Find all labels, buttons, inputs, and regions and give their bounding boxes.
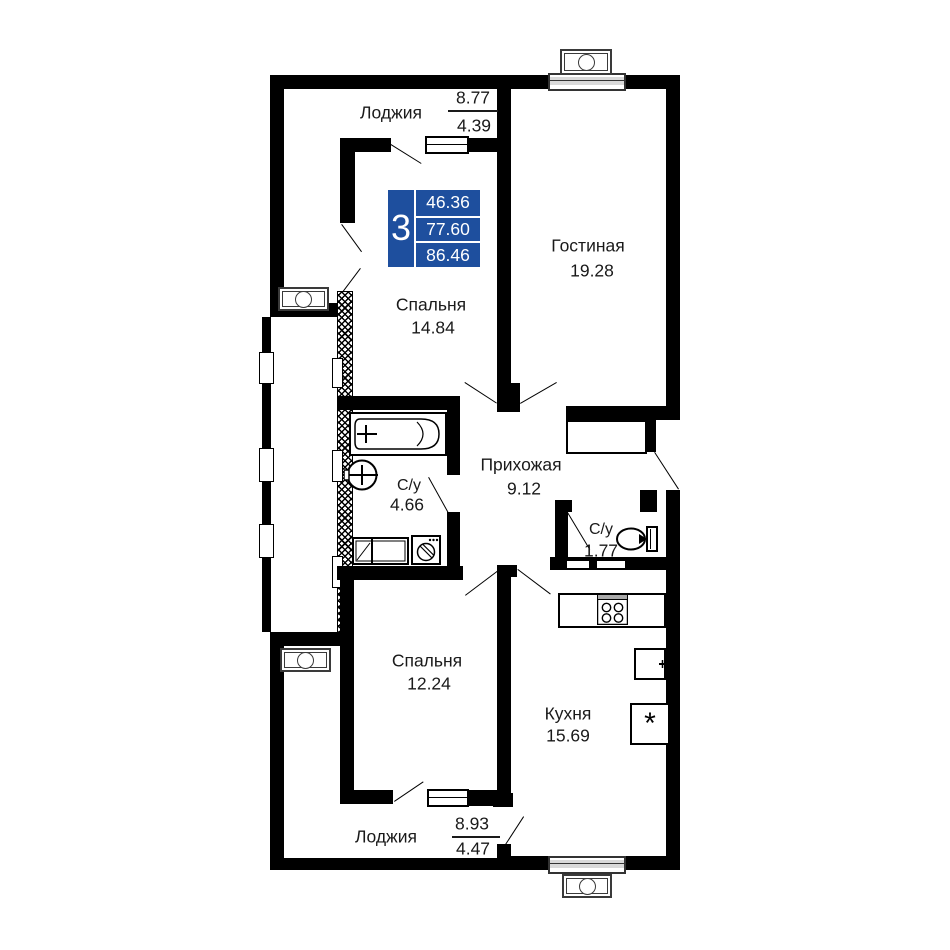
- room-label-hallway: Прихожая: [480, 455, 561, 476]
- apartment-info-badge: 3 46.36 77.60 86.46: [388, 190, 480, 267]
- area-value: 86.46: [416, 241, 480, 267]
- area-value: 46.36: [416, 190, 480, 216]
- wall-segment: [340, 790, 393, 804]
- door-swing: [465, 569, 500, 596]
- area-value: 77.60: [416, 216, 480, 242]
- room-label-kitchen: Кухня: [545, 704, 592, 725]
- room-label-living: Гостиная: [551, 236, 624, 257]
- wall-segment: [270, 75, 284, 317]
- washing-machine-icon: [411, 535, 441, 565]
- vent-slot: [259, 352, 274, 384]
- vent-slot: [259, 448, 274, 482]
- wall-segment: [497, 89, 511, 383]
- wall-segment: [447, 410, 460, 475]
- room-area-living: 19.28: [570, 261, 614, 282]
- wall-segment: [640, 490, 657, 512]
- wall-segment: [493, 793, 513, 807]
- doorway-mark: [464, 382, 496, 404]
- room-area-bathroom: 4.66: [390, 495, 424, 516]
- wall-segment: [337, 566, 463, 580]
- bathtub-icon: [349, 412, 447, 456]
- closet: [566, 420, 647, 454]
- toilet-icon: [614, 525, 659, 553]
- room-area-wc: 1.77: [584, 541, 618, 562]
- window: [548, 856, 626, 874]
- window: [427, 789, 469, 807]
- ac-unit-icon: [560, 49, 612, 75]
- ac-unit-icon: [278, 287, 329, 311]
- sink-icon: [344, 457, 380, 493]
- vent-slot: [259, 524, 274, 558]
- wall-segment: [497, 856, 548, 870]
- entrance-door-swing: [654, 452, 679, 489]
- door-swing: [428, 477, 448, 512]
- window: [425, 136, 469, 154]
- loggia-top-area-full: 8.77: [456, 88, 490, 109]
- room-label-bedroom2: Спальня: [392, 651, 462, 672]
- loggia-top-area-reduced: 4.39: [457, 116, 491, 137]
- window: [548, 73, 626, 91]
- wall-segment: [270, 632, 340, 646]
- vent-slot: [332, 450, 343, 482]
- wall-segment: [497, 565, 511, 807]
- ac-unit-icon: [280, 648, 331, 672]
- refrigerator-symbol: *: [644, 707, 656, 741]
- floor-plan: * 3 46.36 77.60 86.46 Лоджия 8.77 4.39 Г…: [0, 0, 950, 950]
- wall-segment: [666, 490, 680, 870]
- door-swing: [390, 144, 421, 164]
- door-swing: [517, 569, 550, 594]
- fraction-line: [448, 110, 498, 112]
- stove-icon: [597, 594, 628, 625]
- room-area-bedroom1: 14.84: [411, 318, 455, 339]
- wall-segment: [337, 396, 460, 410]
- wall-segment: [497, 565, 517, 577]
- refrigerator-icon: *: [630, 703, 670, 745]
- door-swing: [341, 224, 362, 252]
- vent-slot: [332, 358, 343, 388]
- ac-unit-icon: [562, 874, 612, 898]
- room-area-hallway: 9.12: [507, 479, 541, 500]
- rooms-count: 3: [388, 190, 416, 267]
- room-area-bedroom2: 12.24: [407, 674, 451, 695]
- wall-segment: [622, 856, 680, 870]
- wall-segment: [666, 75, 680, 420]
- room-label-wc: С/у: [589, 521, 613, 539]
- kitchen-sink-icon: [634, 648, 666, 680]
- room-label-bathroom: С/у: [397, 477, 421, 495]
- loggia-bottom-area-full: 8.93: [455, 814, 489, 835]
- room-label-loggia-top: Лоджия: [360, 103, 422, 124]
- room-label-bedroom1: Спальня: [396, 295, 466, 316]
- room-area-kitchen: 15.69: [546, 726, 590, 747]
- loggia-bottom-area-reduced: 4.47: [456, 839, 490, 860]
- cabinet-icon: [352, 537, 409, 565]
- doorway-mark: [520, 382, 557, 404]
- door-swing: [502, 816, 524, 849]
- wall-segment: [340, 580, 354, 792]
- door-swing: [342, 268, 361, 293]
- wall-segment: [270, 858, 497, 870]
- wall-segment: [465, 138, 497, 152]
- wall-segment: [566, 406, 680, 420]
- wall-segment: [270, 75, 548, 89]
- door-swing: [394, 781, 424, 801]
- wall-segment: [340, 138, 355, 223]
- wall-segment: [497, 383, 520, 412]
- room-label-loggia-bottom: Лоджия: [355, 827, 417, 848]
- wall-segment: [555, 500, 572, 512]
